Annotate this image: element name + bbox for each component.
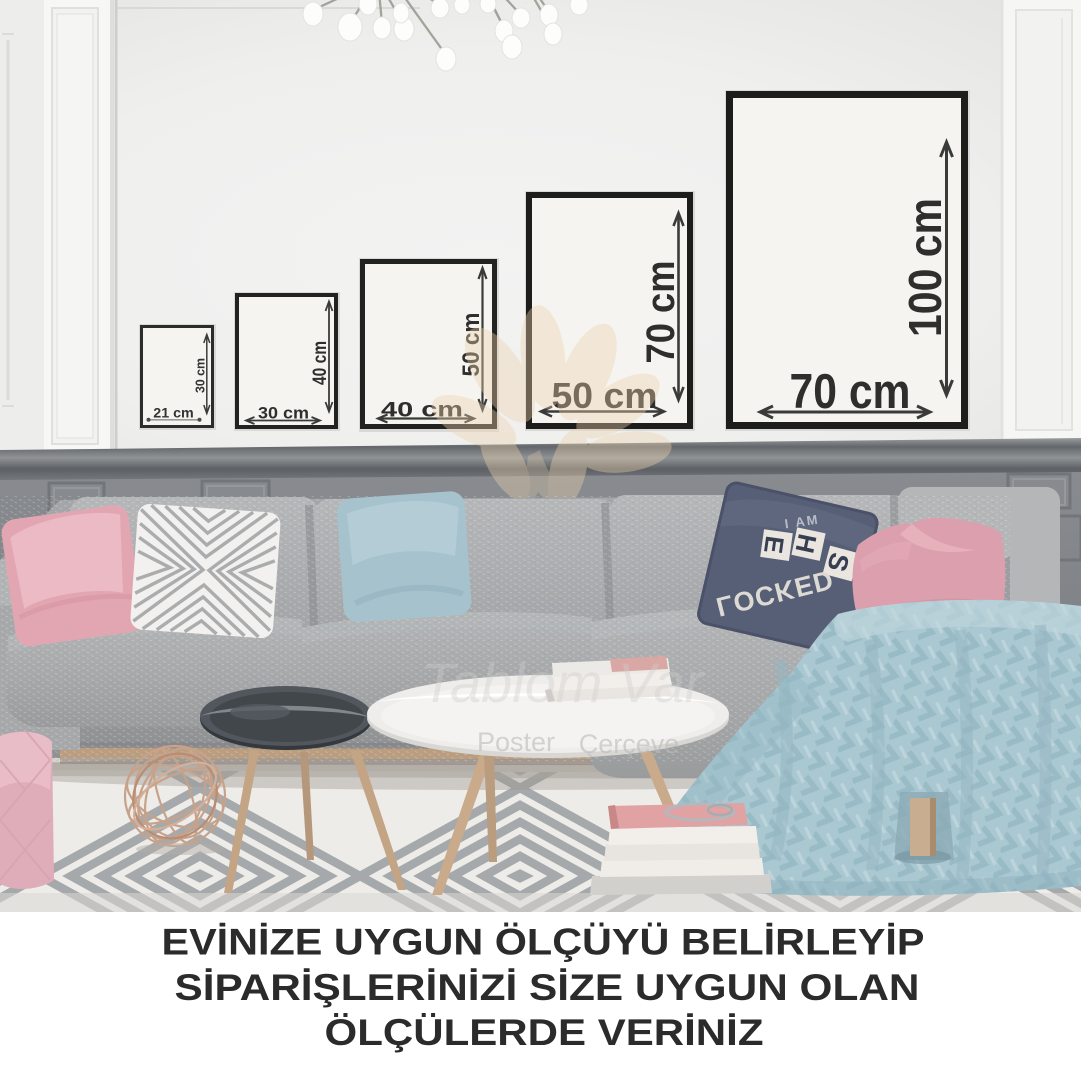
svg-text:Poster: Poster [477, 727, 555, 757]
svg-text:EVİNİZE UYGUN ÖLÇÜYÜ BELİRLEYİ: EVİNİZE UYGUN ÖLÇÜYÜ BELİRLEYİP [162, 922, 925, 963]
svg-text:70 cm: 70 cm [639, 261, 683, 364]
svg-text:40 cm: 40 cm [310, 341, 331, 385]
svg-text:SİPARİŞLERİNİZİ SİZE UYGUN OLA: SİPARİŞLERİNİZİ SİZE UYGUN OLAN [175, 967, 920, 1008]
svg-text:Tablom Var: Tablom Var [421, 651, 706, 714]
svg-text:30 cm: 30 cm [193, 358, 208, 393]
svg-text:30 cm: 30 cm [258, 404, 309, 423]
svg-text:Çerçeve: Çerçeve [579, 729, 680, 759]
svg-text:ÖLÇÜLERDE VERİNİZ: ÖLÇÜLERDE VERİNİZ [325, 1012, 764, 1053]
svg-text:21 cm: 21 cm [153, 406, 194, 421]
svg-text:100 cm: 100 cm [899, 198, 951, 337]
svg-text:70 cm: 70 cm [790, 365, 911, 419]
